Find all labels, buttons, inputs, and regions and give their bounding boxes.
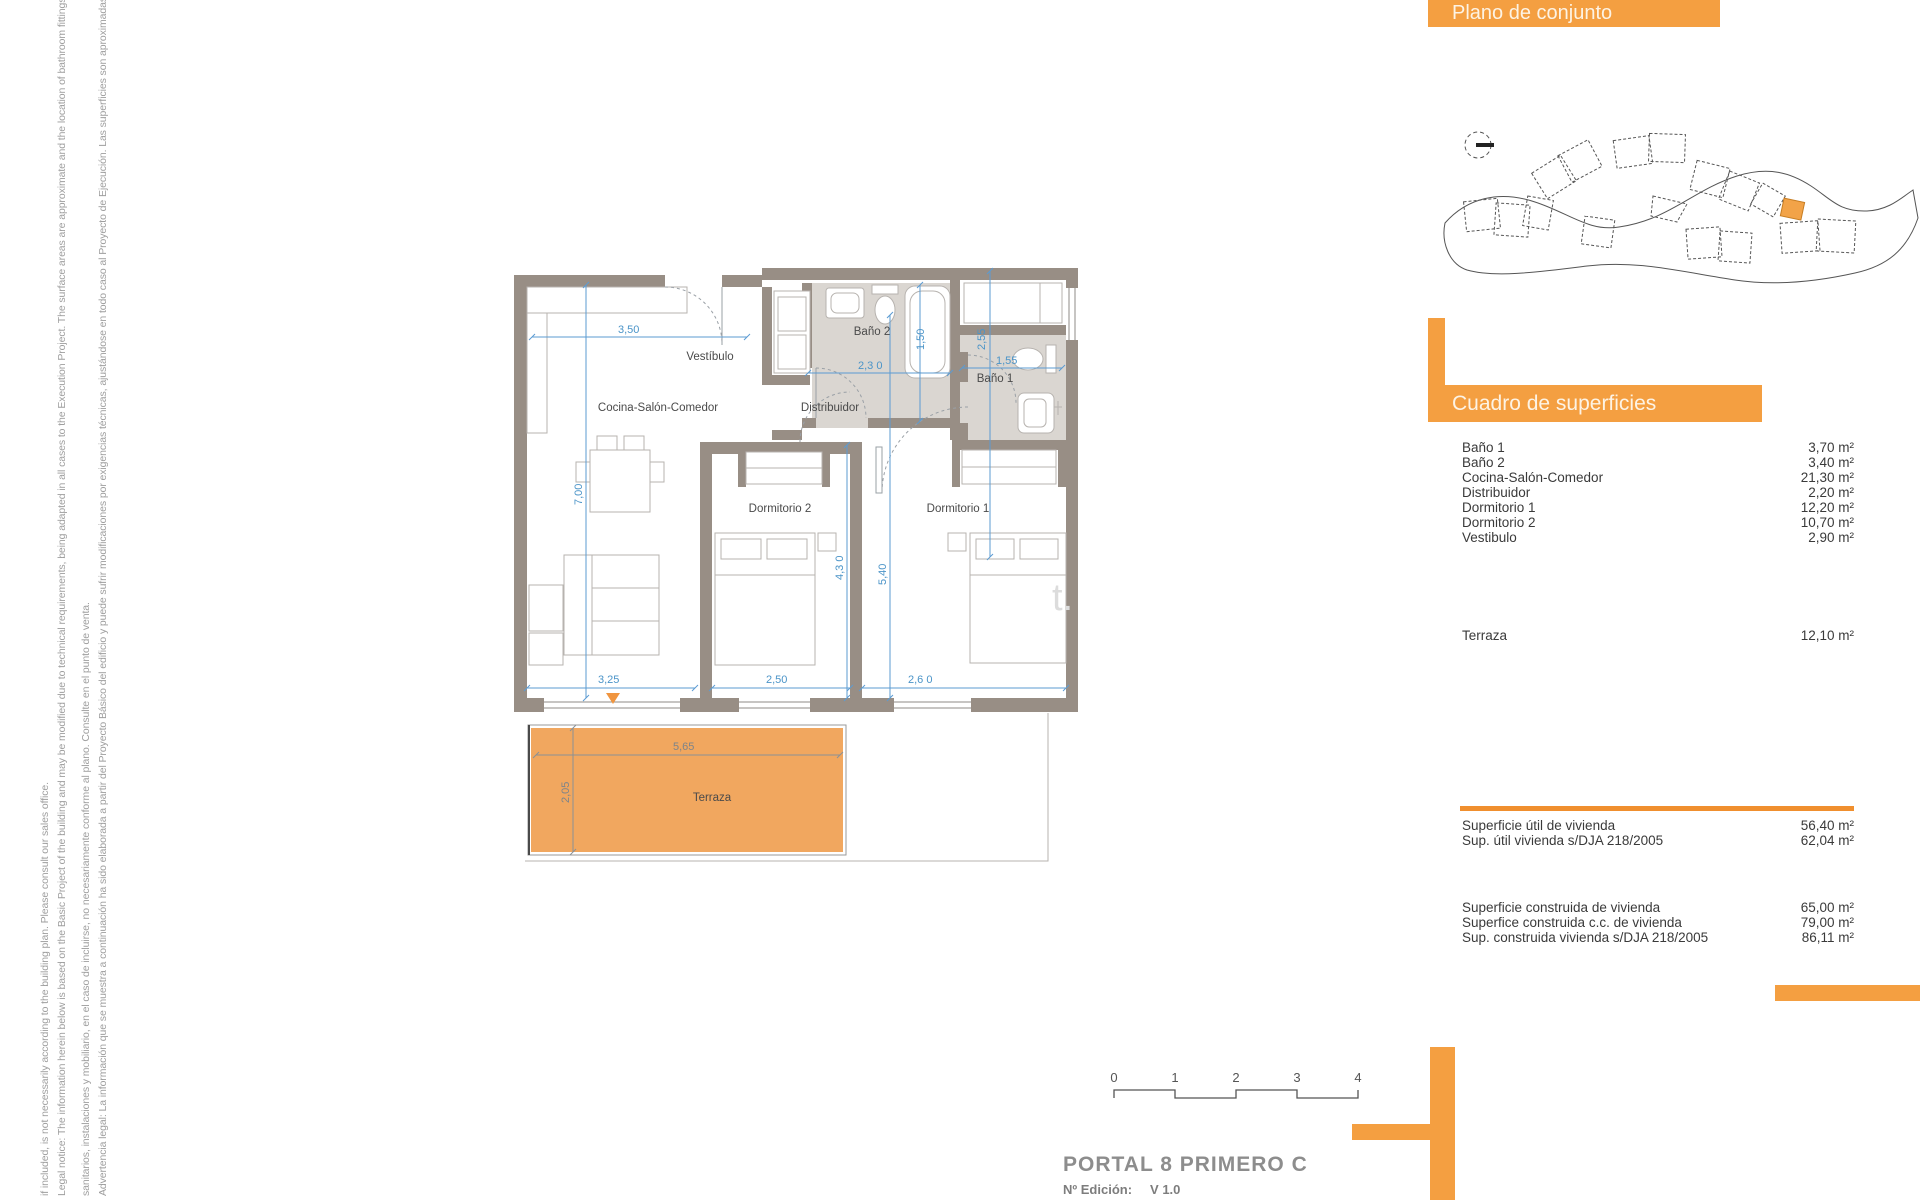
summary-row: Superficie construida de vivienda 65,00 …	[1462, 900, 1854, 915]
summary-value: 56,40 m²	[1801, 818, 1854, 833]
surfaces-banner: Cuadro de superficies	[1428, 385, 1762, 422]
dim-label: 7,00	[573, 484, 585, 505]
edition-line: Nº Edición:V 1.0	[1063, 1182, 1180, 1197]
surface-value: 2,20 m²	[1808, 485, 1854, 500]
surface-row: Dormitorio 2 10,70 m²	[1462, 515, 1854, 530]
site-boundary	[1444, 171, 1918, 283]
scale-tick: 4	[1354, 1070, 1361, 1085]
surface-label: Cocina-Salón-Comedor	[1462, 470, 1603, 485]
dim-label: 5,40	[877, 564, 889, 585]
site-plan-drawing	[1437, 100, 1920, 290]
surfaces-title: Cuadro de superficies	[1452, 392, 1656, 416]
floor-plan-drawing: 3,50 2,3 0 1,50 2,55 1,55 7,00 4,3 0 5,4…	[500, 255, 1100, 875]
kitchen-counter-left	[527, 313, 547, 433]
dim-label: 2,05	[560, 782, 572, 803]
summary-row: Superfice construida c.c. de vivienda 79…	[1462, 915, 1854, 930]
summary-row: Sup. construida vivienda s/DJA 218/2005 …	[1462, 930, 1854, 945]
toilet-tank-bath2	[872, 285, 898, 294]
summary-value: 62,04 m²	[1801, 833, 1854, 848]
surface-label: Baño 1	[1462, 440, 1505, 455]
sofa	[564, 555, 659, 655]
page-title: PORTAL 8 PRIMERO C	[1063, 1153, 1308, 1177]
surface-row: Distribuidor 2,20 m²	[1462, 485, 1854, 500]
legal-line-en-1: Legal notice: The information herein bel…	[56, 0, 68, 1196]
summary-row: Sup. útil vivienda s/DJA 218/2005 62,04 …	[1462, 833, 1854, 848]
surface-value: 12,20 m²	[1801, 500, 1854, 515]
summary-label: Sup. construida vivienda s/DJA 218/2005	[1462, 930, 1708, 945]
chair	[576, 462, 590, 482]
nightstand	[818, 533, 836, 551]
scale-tick: 1	[1171, 1070, 1178, 1085]
dim-label: 2,50	[766, 674, 787, 686]
surface-label: Dormitorio 2	[1462, 515, 1536, 530]
surface-value: 10,70 m²	[1801, 515, 1854, 530]
legal-line-es-1: Advertencia legal: La información que se…	[97, 0, 109, 1196]
chair	[597, 436, 617, 450]
edition-value: V 1.0	[1150, 1182, 1180, 1197]
dim-label: 1,55	[996, 355, 1017, 367]
surface-value: 21,30 m²	[1801, 470, 1854, 485]
surface-row: Cocina-Salón-Comedor 21,30 m²	[1462, 470, 1854, 485]
closet-dorm1-top	[964, 283, 1062, 323]
chair	[624, 436, 644, 450]
toilet-bath2	[875, 296, 895, 324]
kitchen-appliance	[529, 633, 563, 665]
legal-disclaimer: if included, is not necessarily accordin…	[28, 0, 120, 1200]
dim-label: 2,3 0	[858, 360, 882, 372]
summary-value: 65,00 m²	[1801, 900, 1854, 915]
site-plan-title: Plano de conjunto	[1452, 2, 1612, 25]
chair	[650, 462, 664, 482]
watermark-text: t.	[1052, 577, 1073, 619]
surface-row: Baño 2 3,40 m²	[1462, 455, 1854, 470]
summary-label: Superficie construida de vivienda	[1462, 900, 1660, 915]
toilet-tank-bath1	[1046, 345, 1056, 373]
surface-value: 3,70 m²	[1808, 440, 1854, 455]
surface-row: Vestibulo 2,90 m²	[1462, 530, 1854, 545]
summary-rule	[1460, 806, 1854, 811]
scale-tick: 3	[1293, 1070, 1300, 1085]
accent-bar-right	[1775, 985, 1920, 1001]
summary-value: 79,00 m²	[1801, 915, 1854, 930]
surface-value: 12,10 m²	[1801, 628, 1854, 643]
surface-label: Baño 2	[1462, 455, 1505, 470]
terrace-row: Terraza 12,10 m²	[1462, 628, 1854, 643]
surface-value: 2,90 m²	[1808, 530, 1854, 545]
toilet-bath1	[1013, 348, 1043, 370]
legal-line-en-2: if included, is not necessarily accordin…	[39, 782, 51, 1196]
dim-label: 2,55	[976, 329, 988, 350]
dining-table	[590, 450, 650, 512]
room-label-bano1: Baño 1	[977, 373, 1013, 385]
dim-label: 2,6 0	[908, 674, 932, 686]
scale-bar: 0 1 2 3 4	[1100, 1068, 1380, 1108]
edition-label: Nº Edición:	[1063, 1182, 1132, 1197]
dim-label: 5,65	[673, 741, 694, 753]
room-label-cocina: Cocina-Salón-Comedor	[598, 402, 718, 414]
room-label-bano2: Baño 2	[854, 326, 890, 338]
scale-bar-line	[1114, 1090, 1358, 1098]
surface-row: Dormitorio 1 12,20 m²	[1462, 500, 1854, 515]
summary-label: Superficie útil de vivienda	[1462, 818, 1615, 833]
room-label-distribuidor: Distribuidor	[801, 402, 859, 414]
surface-label: Vestibulo	[1462, 530, 1517, 545]
room-label-dorm1: Dormitorio 1	[927, 503, 990, 515]
scale-tick: 0	[1110, 1070, 1117, 1085]
accent-bar-vertical-top	[1428, 318, 1445, 388]
room-label-vestibulo: Vestíbulo	[686, 351, 733, 363]
dim-label: 4,3 0	[834, 556, 846, 580]
dim-label: 3,50	[618, 324, 639, 336]
room-label-dorm2: Dormitorio 2	[749, 503, 812, 515]
surface-label: Distribuidor	[1462, 485, 1530, 500]
summary-label: Superfice construida c.c. de vivienda	[1462, 915, 1682, 930]
surface-label: Terraza	[1462, 628, 1507, 643]
scale-tick: 2	[1232, 1070, 1239, 1085]
dim-label: 3,25	[598, 674, 619, 686]
surface-value: 3,40 m²	[1808, 455, 1854, 470]
kitchen-counter-top	[527, 287, 687, 313]
accent-bar-vertical-bottom	[1430, 1047, 1455, 1200]
room-label-terraza: Terraza	[693, 792, 732, 804]
summary-value: 86,11 m²	[1802, 930, 1854, 945]
highlighted-unit	[1780, 198, 1804, 220]
terrace-area	[525, 713, 1048, 861]
site-plan-banner: Plano de conjunto	[1428, 0, 1720, 27]
nightstand	[948, 533, 966, 551]
dim-label: 1,50	[915, 329, 927, 350]
surface-row: Baño 1 3,70 m²	[1462, 440, 1854, 455]
accent-bar-arm	[1352, 1124, 1430, 1140]
summary-row: Superficie útil de vivienda 56,40 m²	[1462, 818, 1854, 833]
surface-label: Dormitorio 1	[1462, 500, 1536, 515]
legal-line-es-2: sanitarios, instalaciones y mobiliario, …	[80, 602, 92, 1196]
kitchen-appliance	[529, 585, 563, 631]
summary-label: Sup. útil vivienda s/DJA 218/2005	[1462, 833, 1663, 848]
plan-sheet: if included, is not necessarily accordin…	[0, 0, 1920, 1200]
